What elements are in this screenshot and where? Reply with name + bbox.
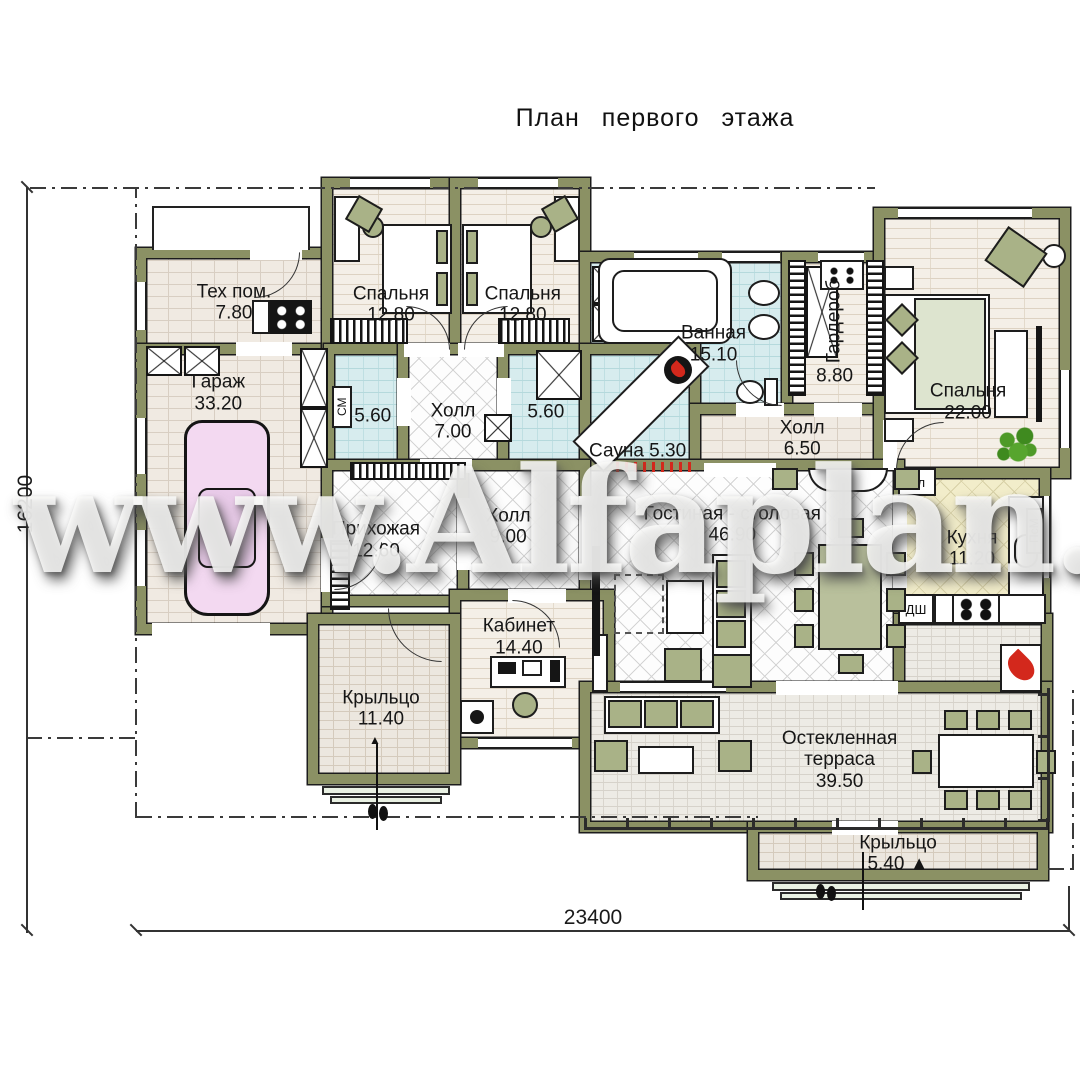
chair [944, 790, 968, 810]
dimension-height-label: 16200 [14, 444, 38, 564]
chair [1008, 790, 1032, 810]
room-label-hall9: Холл9.00 [486, 506, 531, 549]
sink-icon [748, 280, 780, 306]
console-table [808, 468, 888, 492]
plant-icon [994, 424, 1038, 464]
pillow [436, 272, 448, 306]
footprints-icon [827, 886, 836, 901]
cushion [716, 620, 746, 648]
entrance-canopy [152, 206, 310, 250]
footprints-icon [368, 804, 377, 819]
desk-item [498, 662, 516, 674]
window [135, 530, 147, 586]
vent-hatch-icon [536, 350, 582, 400]
door-opening [152, 623, 270, 636]
window [898, 207, 1032, 219]
dishwasher-icon: ПсМ [1026, 508, 1042, 554]
room-label-tech: Тех пом.7.80 [197, 282, 272, 325]
armchair-icon [664, 648, 702, 682]
floor-plan: 16200 23400 План первого этажа ХлПсМДШСМ… [0, 0, 1080, 1080]
overhang-line-joint [26, 737, 136, 739]
room-label-bathroom: Ванная15.10 [681, 323, 746, 366]
room-label-garage: Гараж33.20 [191, 372, 245, 415]
terrace-glazing [1038, 688, 1050, 822]
office-chair-icon [512, 692, 538, 718]
vent-hatch-icon [300, 408, 328, 468]
steps [330, 796, 442, 804]
steps [322, 786, 450, 795]
pillow [436, 230, 448, 264]
radiator-icon [616, 462, 692, 472]
dimension-line-bottom [136, 930, 1070, 932]
chair [838, 654, 864, 674]
door-opening [776, 681, 898, 695]
terrace-table [938, 734, 1034, 788]
closet-rack-icon [788, 260, 806, 396]
sink-icon [748, 314, 780, 340]
chair [912, 750, 932, 774]
pillow [466, 272, 478, 306]
vent-hatch-icon [146, 346, 182, 376]
dining-table-icon [818, 544, 882, 650]
chair [976, 710, 1000, 730]
vent-hatch-icon [484, 414, 512, 442]
washer-icon: СМ [332, 386, 352, 428]
page-title: План первого этажа [480, 104, 830, 133]
closet-rack-icon [350, 462, 466, 480]
room-label-kitchen: Кухня11.20 [947, 528, 998, 571]
door-opening [397, 378, 411, 426]
vent-hatch-icon [300, 348, 328, 408]
entrance-marker-icon: ▲ [364, 732, 386, 748]
overhang-line-top [30, 187, 875, 189]
room-label-hall7: Холл7.00 [431, 401, 476, 444]
room-label-bath560: 5.60 [527, 401, 564, 422]
steps [772, 882, 1030, 891]
nightstand [884, 266, 914, 290]
cooktop-icon [952, 594, 1000, 624]
coffee-table [638, 746, 694, 774]
door-opening [579, 496, 593, 580]
room-label-office: Кабинет14.40 [483, 616, 555, 659]
cushion [680, 700, 714, 728]
room-label-entry: Прихожая12.60 [332, 519, 420, 562]
door-opening [704, 463, 776, 477]
window [1059, 370, 1071, 448]
window [478, 177, 558, 189]
window [478, 737, 572, 749]
car-roof [198, 488, 256, 568]
chair [794, 588, 814, 612]
armchair-icon [594, 740, 628, 772]
room-label-bedroom2: Спальня12.80 [485, 283, 561, 326]
chair [886, 552, 906, 576]
monitor-icon [550, 660, 560, 682]
room-label-porch_left: Крыльцо11.40 [342, 688, 420, 731]
cushion [644, 700, 678, 728]
room-label-sauna: Сауна 5.30 [589, 440, 686, 461]
cushion [716, 560, 746, 588]
overhang-line-right [1072, 688, 1074, 870]
window [350, 177, 430, 189]
chair [838, 518, 864, 538]
room-label-terrace: Остекленная терраса39.50 [765, 728, 915, 792]
room-label-wardrobe: Гардероб8.80 [816, 280, 853, 387]
cushion [608, 700, 642, 728]
chair [794, 552, 814, 576]
room-label-bedroom1: Спальня12.80 [353, 283, 429, 326]
footprints-icon [816, 884, 825, 899]
door-opening [814, 403, 862, 417]
closet-rack-icon [866, 260, 884, 396]
desk-item [522, 660, 542, 676]
extension-line-right [1068, 886, 1070, 932]
chair [944, 710, 968, 730]
coffee-table [666, 580, 704, 634]
dimension-width-label: 23400 [548, 906, 638, 930]
room-label-living: Гостиная - столовая46.90 [644, 504, 821, 547]
window [135, 282, 147, 330]
stove-icon [270, 300, 312, 334]
tv-icon [592, 546, 600, 656]
rug [614, 574, 664, 634]
cushion [716, 590, 746, 618]
chair [772, 468, 798, 490]
window [135, 418, 147, 474]
window [620, 681, 726, 693]
chair [976, 790, 1000, 810]
door-opening [236, 342, 292, 356]
equipment-dial [470, 710, 484, 724]
door-opening [457, 498, 471, 570]
sofa-chaise [712, 654, 752, 688]
chair [886, 588, 906, 612]
pillow [466, 230, 478, 264]
armchair-icon [718, 740, 752, 772]
chair [1008, 710, 1032, 730]
entry-arrow-line [376, 744, 378, 830]
chair [894, 468, 920, 490]
room-label-laundry: 5.60 [354, 405, 391, 426]
room-label-porch_bottom: Крыльцо5.40 ▲ [859, 833, 937, 876]
room-label-bedroom3: Спальня22.00 [930, 381, 1006, 424]
overhang-line-right-bottom [1048, 868, 1074, 870]
terrace-glazing [584, 818, 1048, 830]
tv-icon [1036, 326, 1042, 422]
chair [794, 624, 814, 648]
chair [886, 624, 906, 648]
room-label-hall65: Холл6.50 [780, 418, 825, 461]
footprints-icon [379, 806, 388, 821]
window [722, 251, 780, 263]
